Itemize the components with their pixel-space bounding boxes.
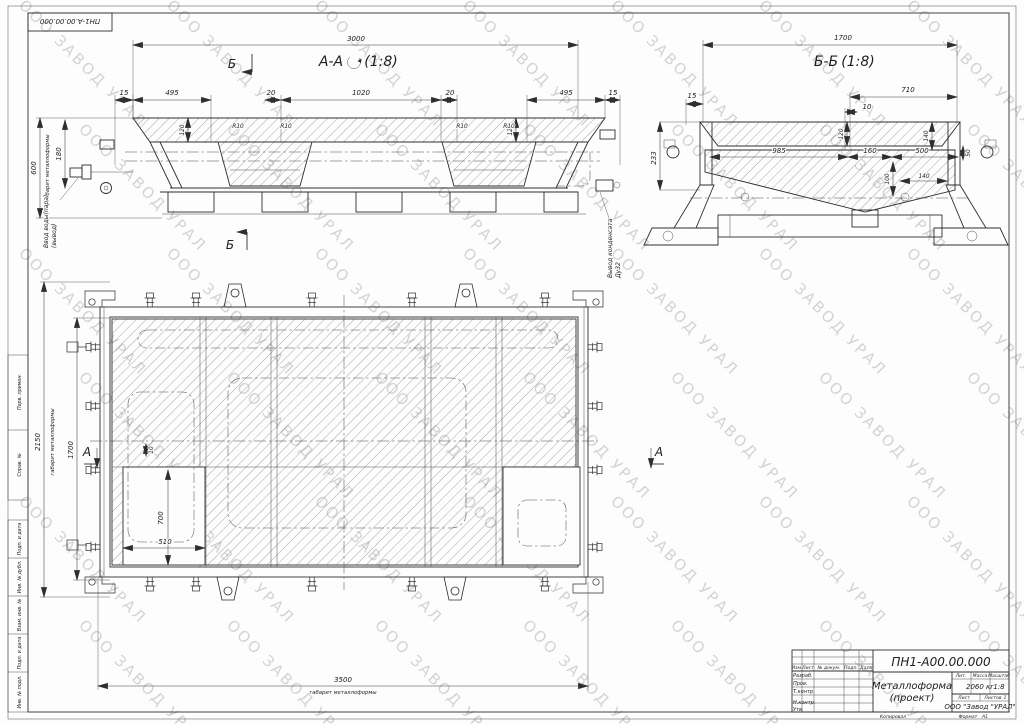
dim-120-left: 120 <box>180 124 186 135</box>
dim-140-bot: 140 <box>918 174 929 180</box>
tb-sheet-label: Лист <box>957 695 970 701</box>
watermark-text: ООО ЗАВОД УРАЛ <box>607 492 742 627</box>
dim-10-plan: 10 <box>149 446 155 454</box>
watermark-text: ООО ЗАВОД УРАЛ <box>667 368 802 503</box>
frame-stamp-top: Перв. примен. Справ. № <box>8 355 28 500</box>
dim-2150: 2150 <box>34 433 42 451</box>
watermark-text: ООО ЗАВОД УРАЛ <box>519 616 654 724</box>
tb-lit-label: Лит. <box>955 673 967 679</box>
dim-710: 710 <box>901 86 915 94</box>
tb-row-razrab: Разраб. <box>793 673 813 679</box>
dim-1700-bb: 1700 <box>834 34 852 42</box>
section-bb-title: Б-Б <box>814 54 838 70</box>
watermark-text: ООО ЗАВОД УРАЛ <box>755 492 890 627</box>
dim-15-bb: 15 <box>688 92 697 100</box>
tb-sheets-label: Листов <box>983 695 1001 701</box>
tb-col-dokum: № докум. <box>817 665 841 671</box>
stamp-vzam-inv: Взам. инв. № <box>17 599 23 632</box>
dim-3500: 3500 <box>334 676 352 684</box>
drawing-sheet: ООО ЗАВОД УРАЛООО ЗАВОД УРАЛООО ЗАВОД УР… <box>0 0 1024 724</box>
tb-format-label: Формат <box>959 714 978 720</box>
dim-50: 50 <box>966 149 972 157</box>
dim-500: 500 <box>915 147 929 155</box>
tb-name-line1: Металлоформа <box>872 681 952 692</box>
dim-495-right: 495 <box>559 89 573 97</box>
dim-985: 985 <box>772 147 786 155</box>
watermark-text: ООО ЗАВОД УРАЛ <box>903 0 1024 131</box>
watermark-text: ООО ЗАВОД УРАЛ <box>371 616 506 724</box>
tb-company: ООО "Завод "УРАЛ" <box>944 703 1015 711</box>
dim-1020: 1020 <box>352 89 370 97</box>
r10-1: R10 <box>232 124 244 130</box>
tb-col-izm: Изм. <box>792 665 803 671</box>
stamp-podp-data-2: Подп. и дата <box>17 637 23 670</box>
tb-mass-value: 2060 кг <box>966 683 994 691</box>
note-inlet-line2: (вывод) <box>51 224 58 248</box>
tb-row-utv: Утв. <box>793 707 804 713</box>
section-aa-scale: (1:8) <box>364 54 397 70</box>
section-aa-legs <box>162 192 586 214</box>
watermark-text: ООО ЗАВОД УРАЛ <box>223 616 358 724</box>
tb-sheets-value: 1 <box>1004 695 1007 701</box>
tb-row-nkontr: Н.контр. <box>793 700 815 706</box>
tb-doc-number: ПН1-А00.00.000 <box>891 655 991 669</box>
cut-mark-a-left: А <box>82 445 97 468</box>
plan-pocket-right <box>503 467 580 565</box>
tb-col-list: Лист <box>801 665 814 671</box>
section-bb-scale: (1:8) <box>841 54 874 70</box>
dim-100: 100 <box>885 173 891 184</box>
cut-label-b-bottom: Б <box>226 238 234 252</box>
cut-label-b-top: Б <box>228 57 236 71</box>
watermark-text: ООО ЗАВОД УРАЛ <box>963 368 1024 503</box>
dim-1700-plan: 1700 <box>67 441 75 459</box>
note-cond-line2: Ду32 <box>615 262 622 279</box>
cut-mark-b-bottom: Б <box>226 232 247 252</box>
view-plan: А А 2150 габарит металлоформы 1700 3500 … <box>34 282 664 696</box>
watermark-text: ООО ЗАВОД УРАЛ <box>903 244 1024 379</box>
corner-doc-number: ПН1-А.00.00.000 <box>39 17 100 25</box>
gabarit-plan-v: габарит металлоформы <box>50 408 56 475</box>
plan-body <box>67 284 603 600</box>
watermark-text: ООО ЗАВОД УРАЛ <box>963 120 1024 255</box>
dim-10-bb: 10 <box>863 103 872 111</box>
dim-160: 160 <box>863 147 877 155</box>
r10-4: R10 <box>503 124 515 130</box>
dim-233: 233 <box>650 151 658 164</box>
dim-700: 700 <box>157 511 165 525</box>
tb-mass-label: Масса <box>973 673 988 679</box>
watermark-text: ООО ЗАВОД УРАЛ <box>755 244 890 379</box>
stamp-inv-podl: Инв. № подл. <box>17 675 23 708</box>
tb-col-podp: Подп. <box>844 665 858 671</box>
gabarit-plan-h: габарит металлоформы <box>309 690 376 696</box>
r10-2: R10 <box>280 124 292 130</box>
watermark-text: ООО ЗАВОД УРАЛ <box>607 244 742 379</box>
gabarit-aa: габарит металлоформы <box>45 134 51 201</box>
tb-scale-label: Масштаб <box>988 673 1010 679</box>
frame-stamp-bottom: Подп. и дата Инв. № дубл. Взам. инв. № П… <box>8 520 28 712</box>
dim-20-right: 20 <box>446 89 455 97</box>
tb-col-data: Дата <box>859 665 872 671</box>
dim-495-left: 495 <box>165 89 179 97</box>
watermark-text: ООО ЗАВОД УРАЛ <box>815 368 950 503</box>
dim-15-right: 15 <box>609 89 618 97</box>
stamp-inv-dubl: Инв. № дубл. <box>17 561 23 594</box>
stamp-podp-data-1: Подп. и дата <box>17 523 23 556</box>
r10-3: R10 <box>456 124 468 130</box>
tb-row-tkontr: Т.контр. <box>793 689 815 695</box>
watermark-text: ООО ЗАВОД УРАЛ <box>667 616 802 724</box>
dim-600: 600 <box>30 161 38 175</box>
cut-mark-a-right: А <box>651 445 664 468</box>
stamp-perv-primen: Перв. примен. <box>17 374 23 410</box>
section-aa-title: А-А <box>318 54 343 70</box>
watermark-text: ООО ЗАВОД УРАЛ <box>903 492 1024 627</box>
tb-scale-value: 1:8 <box>993 683 1005 691</box>
dim-15-left: 15 <box>120 89 129 97</box>
dim-120-bb: 120 <box>839 128 845 139</box>
cut-label-a-right: А <box>654 445 663 459</box>
tb-format-value: А1 <box>981 714 988 720</box>
watermark-text: ООО ЗАВОД УРАЛ <box>607 0 742 131</box>
stamp-sprav-no: Справ. № <box>17 453 23 476</box>
dim-180: 180 <box>55 147 63 161</box>
rotated-symbol <box>347 57 361 69</box>
tb-name-line2: (проект) <box>890 693 935 704</box>
dim-510: 510 <box>158 538 172 546</box>
watermark-text: ООО ЗАВОД УРАЛ <box>75 616 210 724</box>
note-cond-line1: Вывод конденсата <box>607 218 614 278</box>
dim-3000: 3000 <box>347 35 365 43</box>
dim-20-left: 20 <box>267 89 276 97</box>
tb-row-prov: Пров. <box>793 681 808 687</box>
drawing-canvas: ООО ЗАВОД УРАЛООО ЗАВОД УРАЛООО ЗАВОД УР… <box>0 0 1024 724</box>
dim-140-top: 140 <box>924 130 930 141</box>
cut-label-a-left: А <box>82 445 91 459</box>
note-inlet-line1: Ввод воды(пара) <box>43 195 50 248</box>
tb-kopiroval: Копировал <box>880 714 906 720</box>
